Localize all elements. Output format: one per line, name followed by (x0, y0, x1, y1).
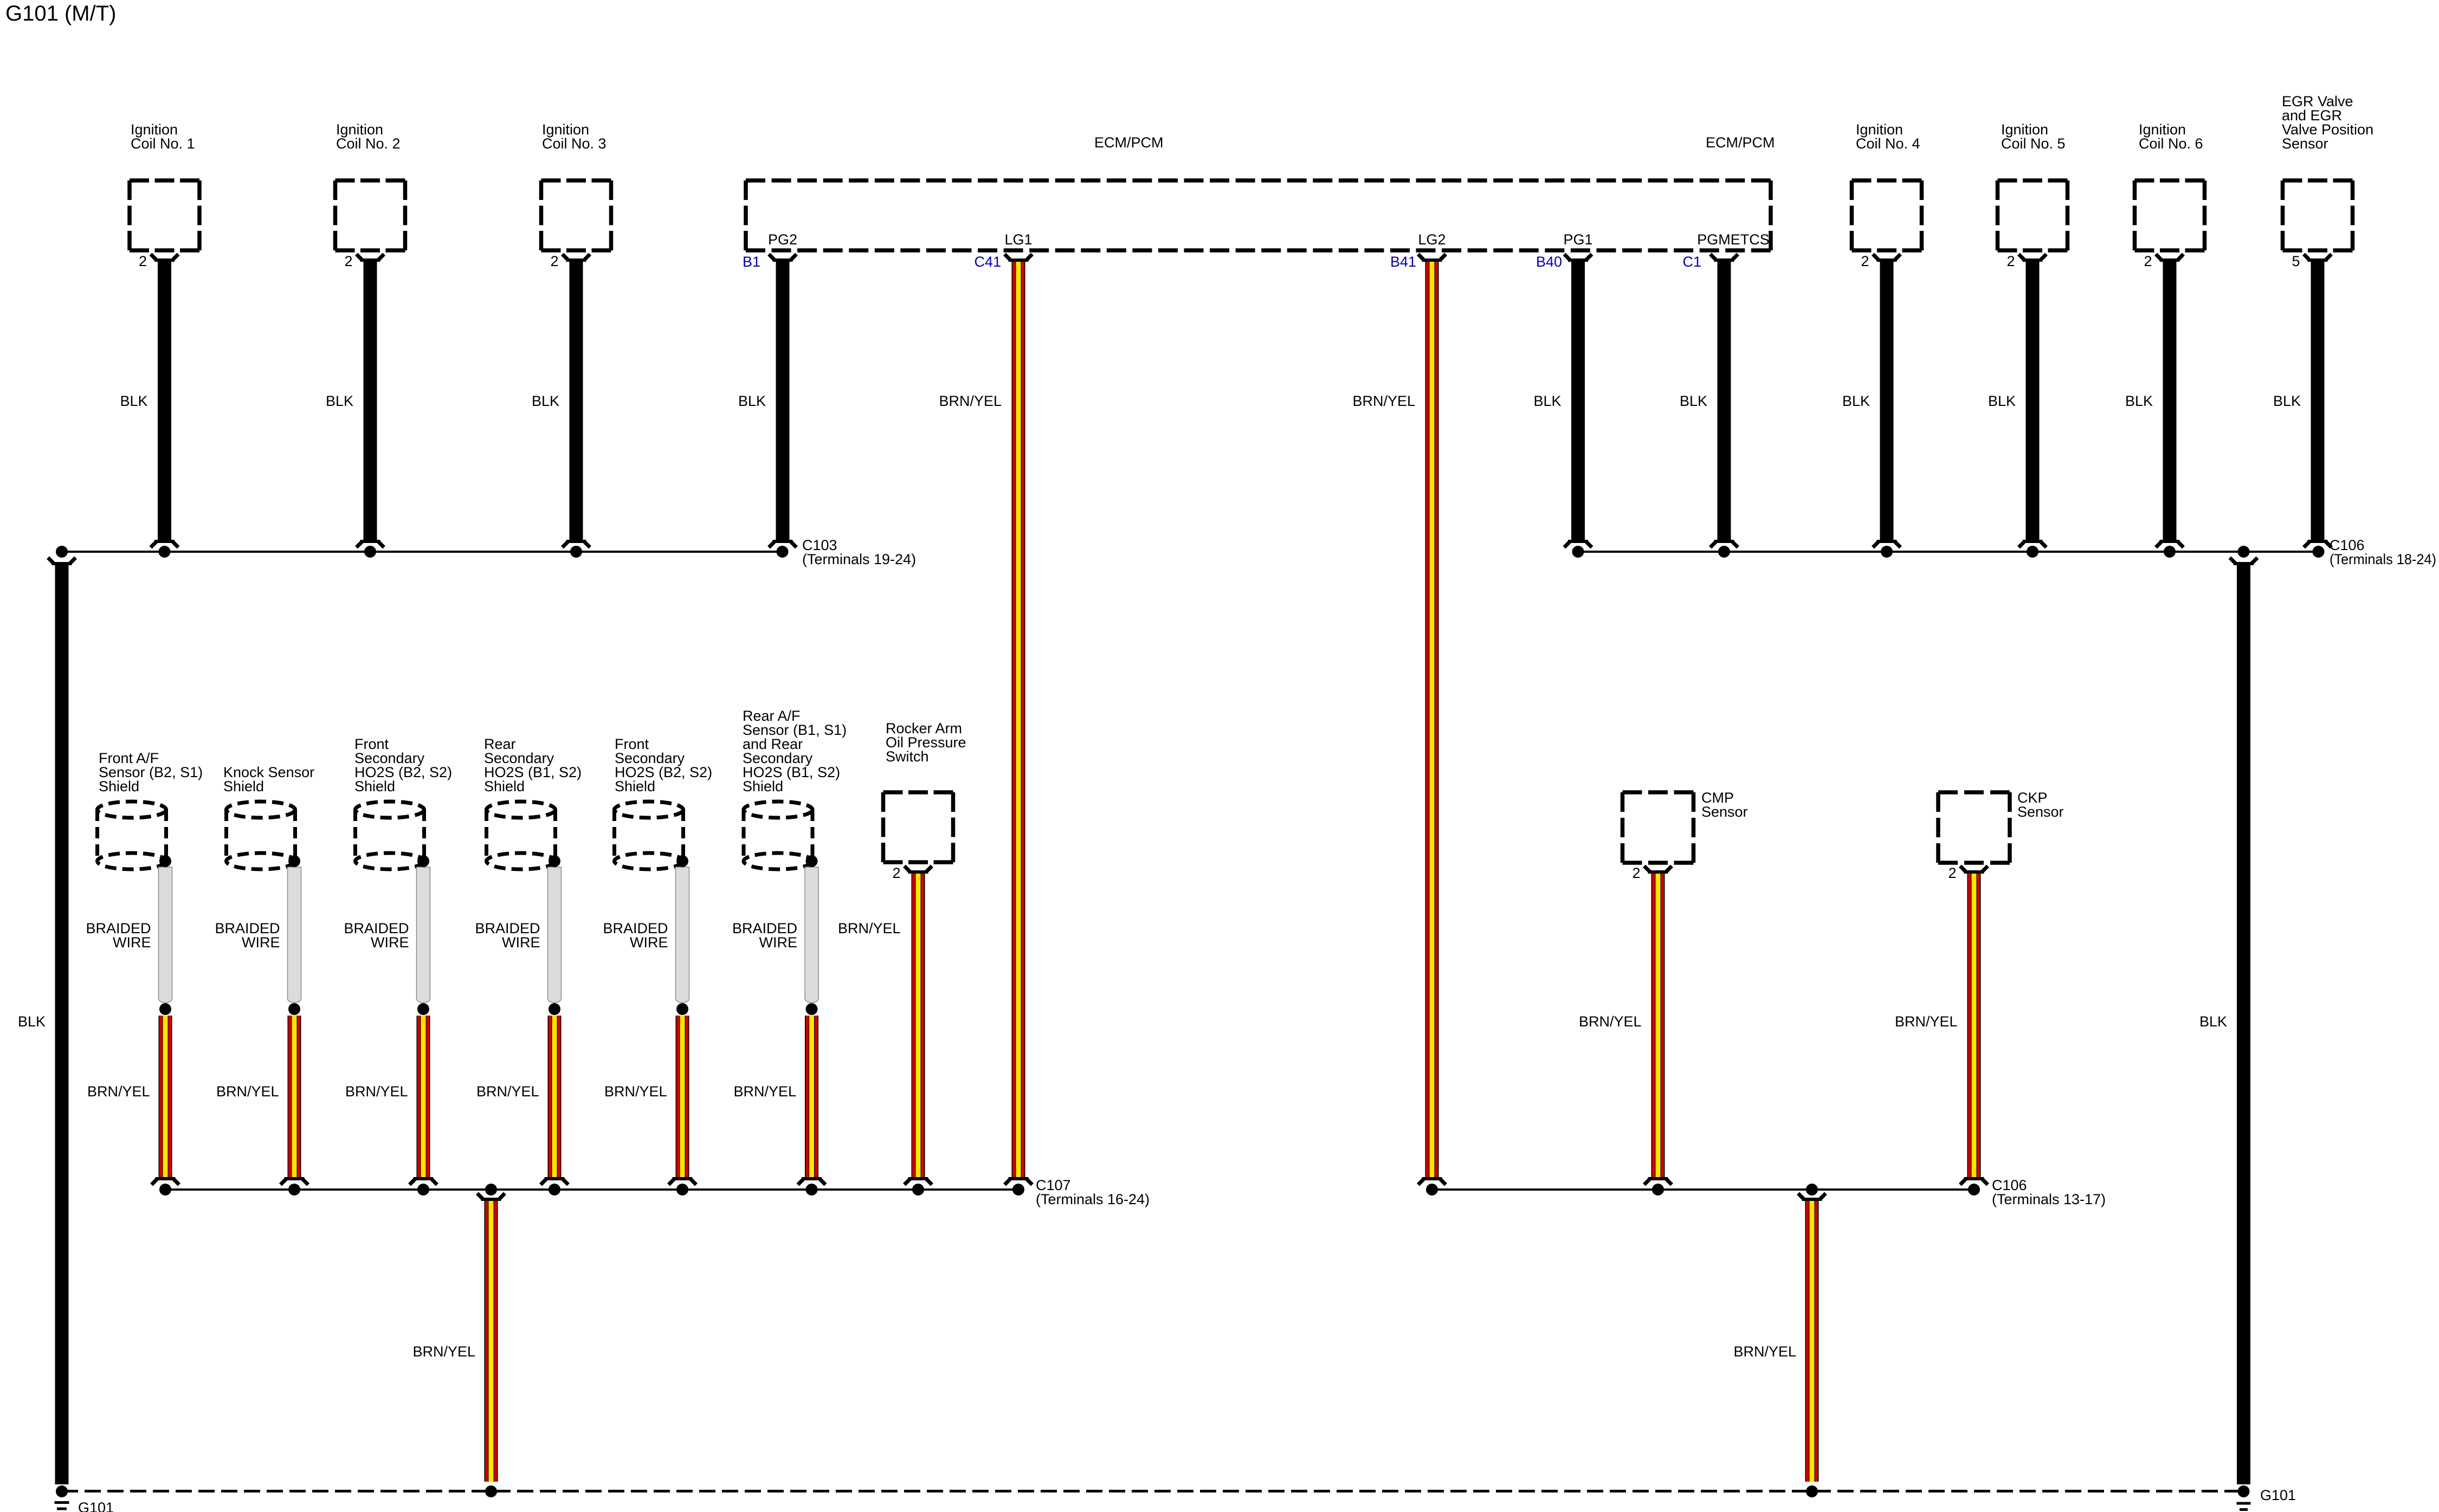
svg-text:Shield: Shield (354, 778, 395, 794)
svg-text:(Terminals 18-24): (Terminals 18-24) (2330, 551, 2436, 567)
svg-text:BLK: BLK (2125, 393, 2153, 409)
svg-text:WIRE: WIRE (113, 934, 151, 951)
svg-text:Coil No. 2: Coil No. 2 (336, 135, 401, 152)
svg-text:PG1: PG1 (1563, 231, 1592, 248)
svg-text:Sensor: Sensor (1701, 804, 1748, 820)
svg-text:WIRE: WIRE (371, 934, 409, 951)
svg-text:B41: B41 (1390, 254, 1416, 270)
svg-text:PGMETCS: PGMETCS (1697, 231, 1770, 248)
svg-text:BRN/YEL: BRN/YEL (1895, 1013, 1958, 1030)
svg-text:Coil No. 1: Coil No. 1 (131, 135, 195, 152)
svg-text:G101: G101 (78, 1500, 114, 1512)
svg-text:BRN/YEL: BRN/YEL (216, 1083, 279, 1100)
svg-text:BRN/YEL: BRN/YEL (412, 1343, 475, 1360)
svg-text:PG2: PG2 (768, 231, 797, 248)
svg-text:BRN/YEL: BRN/YEL (1579, 1013, 1642, 1030)
svg-text:Coil No. 3: Coil No. 3 (542, 135, 606, 152)
svg-text:BRN/YEL: BRN/YEL (604, 1083, 667, 1100)
svg-text:BLK: BLK (1533, 393, 1561, 409)
svg-text:BRN/YEL: BRN/YEL (345, 1083, 408, 1100)
svg-text:BRN/YEL: BRN/YEL (476, 1083, 539, 1100)
svg-text:Sensor: Sensor (2282, 135, 2328, 152)
svg-text:2: 2 (892, 865, 900, 881)
svg-text:BLK: BLK (326, 393, 353, 409)
svg-text:LG1: LG1 (1004, 231, 1032, 248)
svg-text:ECM/PCM: ECM/PCM (1094, 134, 1164, 151)
svg-text:BLK: BLK (120, 393, 147, 409)
svg-text:WIRE: WIRE (759, 934, 798, 951)
svg-text:ECM/PCM: ECM/PCM (1706, 134, 1775, 151)
svg-text:Coil No. 4: Coil No. 4 (1856, 135, 1920, 152)
svg-text:Shield: Shield (223, 778, 264, 794)
svg-text:BLK: BLK (738, 393, 766, 409)
svg-text:BRN/YEL: BRN/YEL (939, 393, 1002, 409)
svg-text:G101: G101 (2260, 1487, 2296, 1503)
svg-text:BRN/YEL: BRN/YEL (87, 1083, 150, 1100)
svg-text:2: 2 (344, 253, 352, 269)
svg-text:2: 2 (550, 253, 558, 269)
svg-text:BRN/YEL: BRN/YEL (1352, 393, 1415, 409)
svg-text:C1: C1 (1682, 254, 1701, 270)
svg-text:2: 2 (2006, 253, 2015, 269)
svg-text:WIRE: WIRE (242, 934, 280, 951)
svg-text:Switch: Switch (886, 748, 929, 765)
svg-text:BLK: BLK (1680, 393, 1707, 409)
svg-text:(Terminals 16-24): (Terminals 16-24) (1036, 1191, 1150, 1207)
svg-text:BLK: BLK (2273, 393, 2301, 409)
svg-text:BRN/YEL: BRN/YEL (1733, 1343, 1796, 1360)
svg-text:BRN/YEL: BRN/YEL (838, 920, 901, 936)
svg-text:Shield: Shield (484, 778, 525, 794)
svg-text:B40: B40 (1536, 254, 1562, 270)
svg-text:5: 5 (2292, 253, 2300, 269)
svg-text:B1: B1 (743, 254, 760, 270)
svg-text:WIRE: WIRE (630, 934, 668, 951)
svg-text:Shield: Shield (743, 778, 783, 794)
svg-text:Shield: Shield (615, 778, 655, 794)
svg-text:BLK: BLK (1988, 393, 2016, 409)
svg-text:Coil No. 6: Coil No. 6 (2139, 135, 2203, 152)
svg-text:(Terminals 19-24): (Terminals 19-24) (802, 551, 916, 567)
svg-text:BLK: BLK (18, 1013, 46, 1030)
svg-text:2: 2 (1948, 865, 1956, 881)
svg-text:G101 (M/T): G101 (M/T) (5, 2, 116, 25)
svg-text:2: 2 (139, 253, 147, 269)
svg-text:WIRE: WIRE (502, 934, 540, 951)
svg-text:Coil No. 5: Coil No. 5 (2001, 135, 2066, 152)
svg-text:BLK: BLK (2199, 1013, 2227, 1030)
svg-text:2: 2 (2144, 253, 2152, 269)
svg-text:BLK: BLK (532, 393, 559, 409)
svg-text:BRN/YEL: BRN/YEL (733, 1083, 796, 1100)
svg-text:Sensor: Sensor (2017, 804, 2064, 820)
svg-text:2: 2 (1861, 253, 1869, 269)
svg-text:(Terminals 13-17): (Terminals 13-17) (1992, 1191, 2106, 1207)
svg-text:C41: C41 (974, 254, 1001, 270)
svg-text:BLK: BLK (1842, 393, 1870, 409)
svg-text:LG2: LG2 (1418, 231, 1446, 248)
svg-text:Shield: Shield (99, 778, 139, 794)
svg-text:2: 2 (1632, 865, 1640, 881)
